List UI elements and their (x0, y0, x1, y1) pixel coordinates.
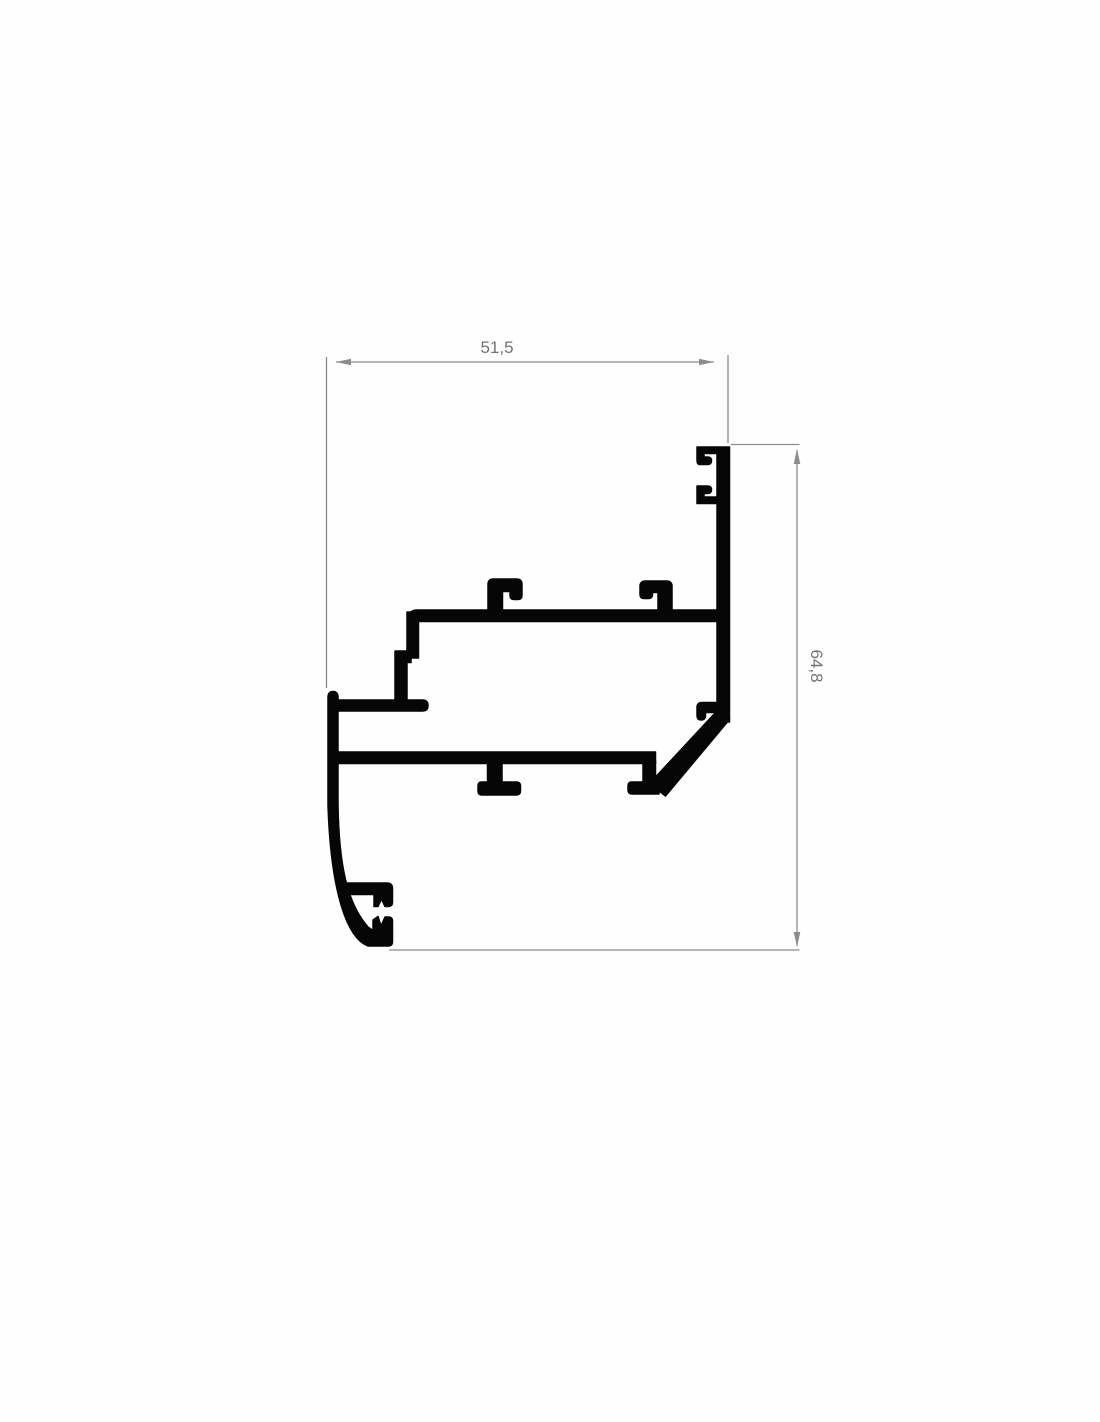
profile-t-foot-right (628, 760, 659, 794)
height-dimension-label: 64,8 (807, 649, 826, 682)
profile-body (328, 447, 730, 946)
technical-drawing-canvas: 51,5 64,8 (0, 0, 1100, 1422)
profile-upper-left-arm (337, 700, 428, 711)
profile-t-foot-left (478, 760, 521, 795)
profile-top-hook-lower (697, 486, 717, 504)
profile-cross-section-drawing: 51,5 64,8 (0, 0, 1100, 1422)
height-dim-arrowhead-top (794, 449, 801, 464)
width-dim-arrowhead-right (699, 359, 714, 366)
profile-top-hook-upper (697, 447, 717, 465)
profile-outer-left-wall (328, 692, 393, 947)
profile-snap-hook-left (488, 579, 522, 614)
profile-snap-hook-right (640, 581, 672, 614)
height-dim-arrowhead-bottom (794, 932, 801, 947)
profile-right-wall (717, 447, 730, 722)
profile-diagonal-brace (650, 712, 730, 796)
dimension-annotations: 51,5 64,8 (327, 338, 827, 950)
profile-chamber-left-wall (395, 612, 419, 704)
width-dimension-label: 51,5 (480, 338, 513, 357)
width-dim-arrowhead-left (336, 359, 351, 366)
